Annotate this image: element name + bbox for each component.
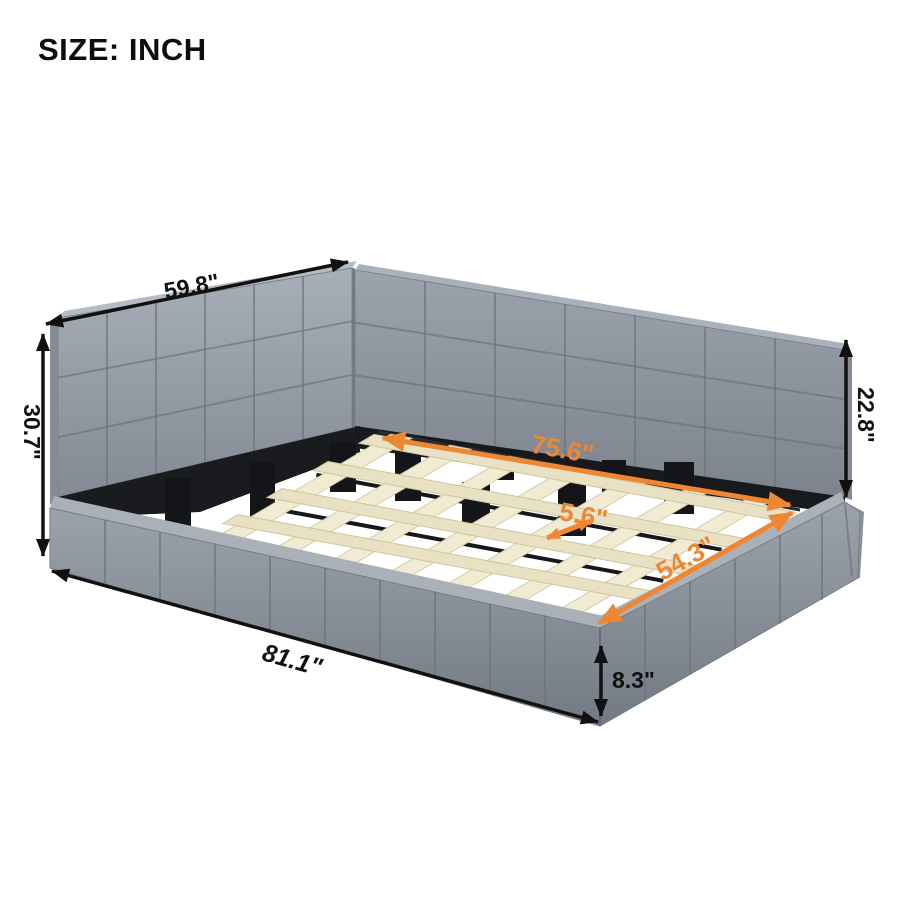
bed-dimension-diagram: 59.8" 30.7" 22.8" 75.6" 5.6" 54.3" 81.1"… (0, 0, 900, 900)
page-title: SIZE: INCH (38, 32, 207, 67)
headboard-side-face (50, 318, 58, 505)
dimension-label-backrest-height: 22.8" (853, 387, 879, 443)
dimension-label-headboard-height: 30.7" (19, 404, 45, 460)
dimension-label-rail-height: 8.3" (612, 667, 655, 693)
bed-dimension-diagram-page: 59.8" 30.7" 22.8" 75.6" 5.6" 54.3" 81.1"… (0, 0, 900, 900)
